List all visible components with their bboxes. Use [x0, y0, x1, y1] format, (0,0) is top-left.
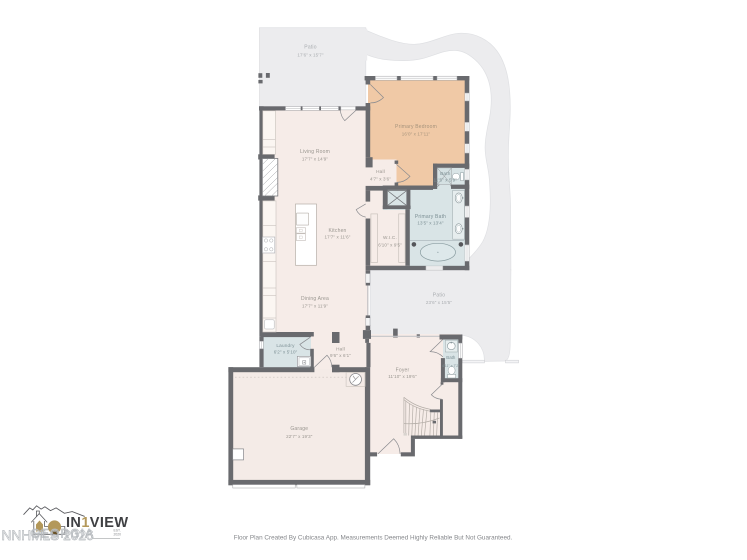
svg-text:Foyer: Foyer — [396, 368, 410, 374]
svg-text:Patio: Patio — [433, 292, 445, 298]
svg-text:11'10" x 19'6": 11'10" x 19'6" — [388, 374, 417, 379]
svg-text:17'7" x 11'6": 17'7" x 11'6" — [325, 235, 351, 240]
svg-text:Bath: Bath — [446, 355, 456, 360]
svg-text:Kitchen: Kitchen — [328, 228, 346, 234]
svg-text:W.I.C.: W.I.C. — [383, 235, 397, 240]
svg-text:Living Room: Living Room — [300, 149, 330, 155]
svg-text:Hall: Hall — [376, 169, 385, 174]
svg-text:Dining Area: Dining Area — [301, 296, 329, 302]
svg-text:Primary Bedroom: Primary Bedroom — [395, 124, 437, 130]
svg-text:Hall: Hall — [336, 346, 345, 351]
svg-text:4'7" x 3'6": 4'7" x 3'6" — [370, 177, 391, 182]
svg-text:NNHMLS 2026: NNHMLS 2026 — [2, 528, 94, 543]
svg-text:22'7" x 19'3": 22'7" x 19'3" — [286, 434, 313, 439]
svg-text:23'6" x 15'5": 23'6" x 15'5" — [426, 300, 453, 305]
svg-text:17'7" x 14'9": 17'7" x 14'9" — [302, 157, 329, 162]
svg-text:4'11" x 7'2": 4'11" x 7'2" — [442, 364, 460, 368]
svg-text:11'5" x 5'9": 11'5" x 5'9" — [434, 178, 458, 183]
svg-text:16'0" x 17'11": 16'0" x 17'11" — [402, 132, 431, 137]
svg-text:9'6" x 6'1": 9'6" x 6'1" — [330, 353, 351, 358]
svg-text:17'6" x 15'7": 17'6" x 15'7" — [297, 53, 324, 58]
svg-text:2020: 2020 — [114, 533, 122, 537]
svg-text:13'5" x 13'4": 13'5" x 13'4" — [417, 221, 444, 226]
svg-text:Primary Bath: Primary Bath — [415, 214, 446, 220]
svg-text:17'7" x 11'9": 17'7" x 11'9" — [302, 304, 328, 309]
svg-text:Bath: Bath — [440, 171, 451, 176]
svg-text:6'2" x 5'10": 6'2" x 5'10" — [274, 350, 298, 355]
svg-text:6'10" x 9'5": 6'10" x 9'5" — [378, 242, 402, 247]
svg-text:Floor Plan Created By Cubicasa: Floor Plan Created By Cubicasa App. Meas… — [234, 535, 513, 542]
svg-text:Laundry: Laundry — [276, 343, 295, 348]
svg-text:Patio: Patio — [304, 44, 316, 50]
svg-text:Garage: Garage — [290, 426, 308, 432]
